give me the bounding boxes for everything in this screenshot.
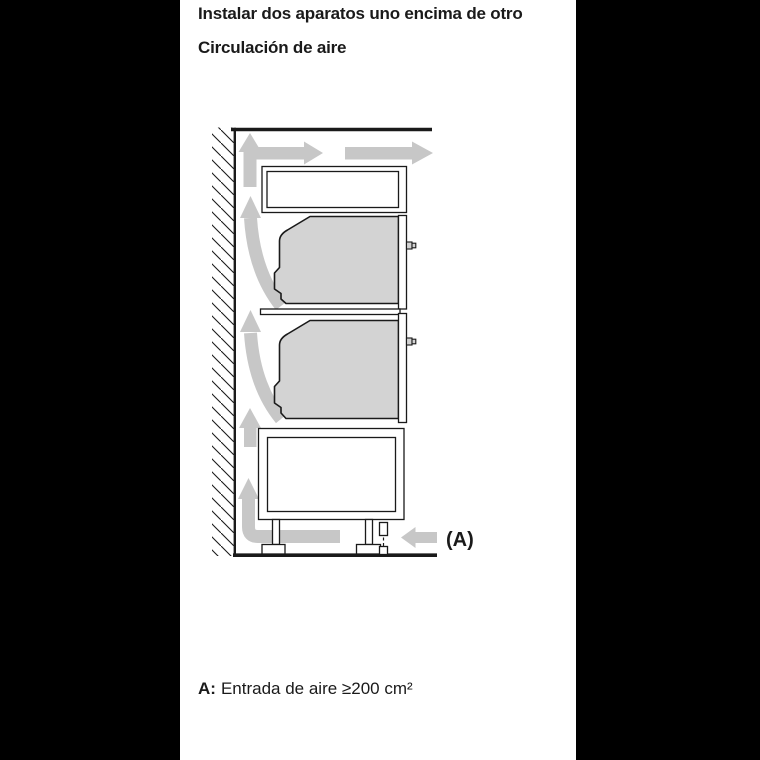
oven-lower-handle (407, 338, 416, 345)
cabinet-foot-left (262, 545, 285, 555)
cabinet-leg-right (366, 520, 373, 545)
page-title: Instalar dos aparatos uno encima de otro (198, 4, 523, 24)
oven-lower-front-panel (399, 314, 407, 423)
airflow-up-arrow-top (239, 133, 262, 187)
wall-hatch (212, 128, 235, 557)
oven-upper-front-panel (399, 216, 407, 310)
document-page: Instalar dos aparatos uno encima de otro… (180, 0, 576, 760)
cabinet-leg-left (273, 520, 280, 545)
oven-upper (275, 216, 416, 310)
airflow-up-arrow-base (239, 408, 261, 447)
oven-upper-body (275, 217, 399, 304)
air-inlet-arrow (401, 527, 437, 548)
oven-lower-body (275, 321, 399, 419)
shelf-divider (261, 309, 401, 315)
installation-diagram: (A) (180, 100, 576, 600)
vent-compartment-top (262, 167, 407, 213)
cabinet-foot-right (357, 545, 381, 555)
oven-lower (275, 314, 416, 423)
legend-note: A:Entrada de aire ≥200 cm² (198, 679, 413, 699)
legend-key: A: (198, 679, 216, 698)
airflow-right-arrow-2 (345, 142, 433, 165)
oven-upper-handle (407, 242, 416, 249)
plinth-vent-marker (380, 523, 388, 555)
inlet-label: (A) (446, 529, 474, 551)
section-subtitle: Circulación de aire (198, 38, 346, 58)
legend-text: Entrada de aire ≥200 cm² (221, 679, 413, 698)
